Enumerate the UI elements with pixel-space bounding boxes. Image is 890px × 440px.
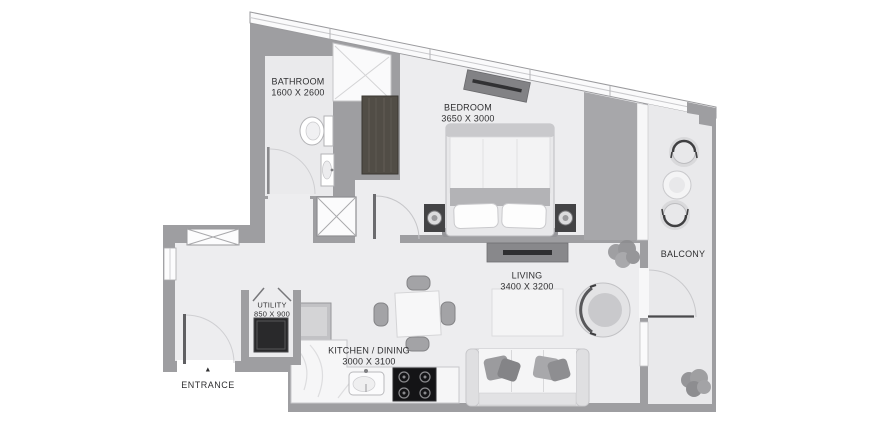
wardrobe <box>362 96 398 174</box>
wall-vent-panel <box>187 229 239 245</box>
floor-plan-canvas <box>0 0 890 440</box>
toilet <box>300 116 333 146</box>
floor-plan-page: BATHROOM 1600 X 2600 BEDROOM 3650 X 3000… <box>0 0 890 440</box>
structural-block <box>584 92 637 240</box>
living-tv-console <box>487 243 568 262</box>
kitchen-sink <box>349 369 384 395</box>
bathroom-vestibule-floor <box>265 199 313 243</box>
sofa <box>466 349 589 406</box>
rug <box>492 289 563 336</box>
nightstand-left <box>424 204 445 232</box>
living-balcony-window <box>640 322 648 366</box>
bed <box>442 124 558 237</box>
bedroom-balcony-window <box>637 103 648 240</box>
utility-room <box>241 288 301 365</box>
bathroom-sink <box>321 154 334 186</box>
washing-machine <box>254 318 288 352</box>
stove <box>393 368 436 401</box>
lift-shaft <box>317 197 356 236</box>
armchair <box>576 283 630 337</box>
nightstand-right <box>555 204 576 232</box>
dining-table <box>395 291 441 337</box>
side-window <box>164 248 176 280</box>
balcony-table <box>663 171 691 199</box>
